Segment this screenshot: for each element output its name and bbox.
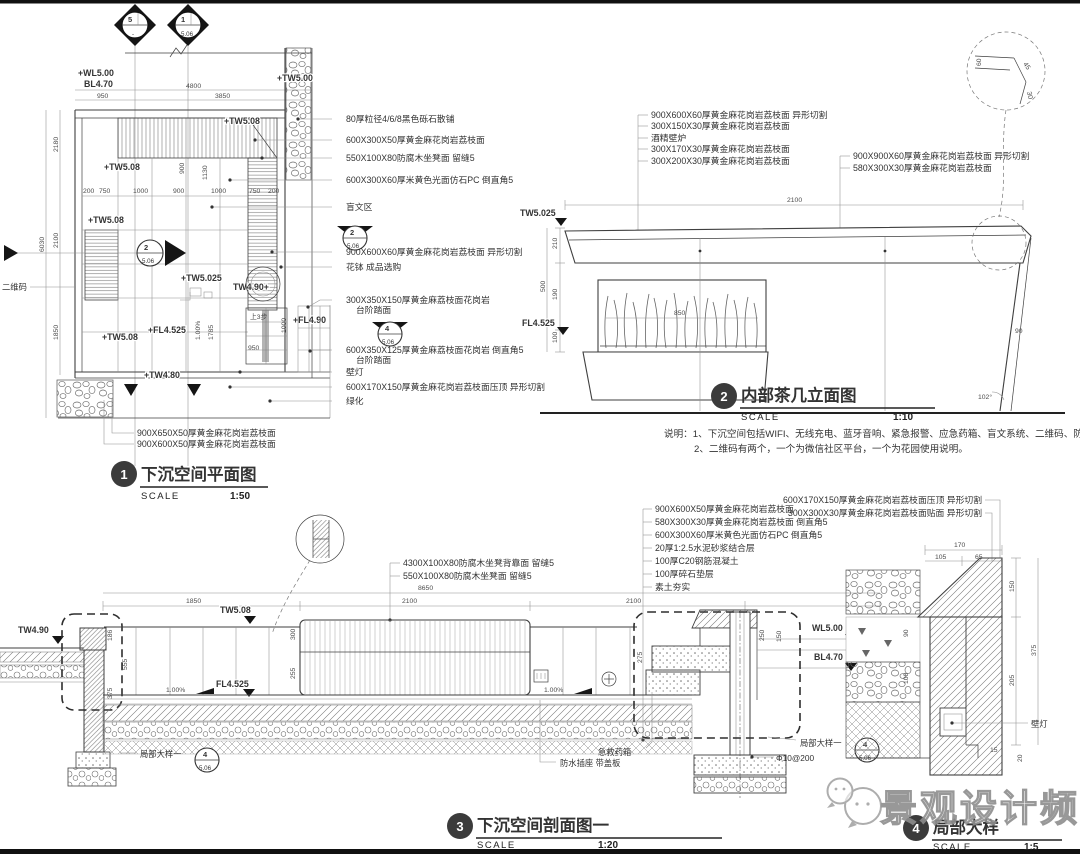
- title-text: 下沉空间平面图: [141, 464, 257, 484]
- corner-detail: 60 45 30: [975, 56, 1034, 104]
- dim: 375: [107, 687, 114, 699]
- scale-value: 1:50: [230, 491, 250, 502]
- floor-layers: [103, 695, 692, 754]
- dim: 750: [99, 188, 111, 195]
- wall-detail-bubble: [272, 515, 344, 634]
- bench-slats: [305, 620, 525, 695]
- dim: 2100: [402, 598, 417, 605]
- section-marker-5: 5 -: [114, 4, 156, 46]
- level-label: +FL4.525: [148, 325, 186, 335]
- title-number: 1: [120, 467, 127, 482]
- detail-call-label: 局部大样一: [800, 738, 842, 748]
- scale-word: SCALE: [933, 842, 972, 853]
- slope-label: 1.00%: [544, 687, 563, 694]
- dim: 850: [674, 310, 686, 317]
- dim: 900: [179, 162, 186, 174]
- title-number: 3: [456, 819, 463, 834]
- watermark: 景观设计频道: [827, 779, 1080, 831]
- dim: 1000: [133, 188, 148, 195]
- title-plan: 1 下沉空间平面图 SCALE 1:50: [111, 461, 268, 502]
- scale-value: 1:10: [893, 412, 913, 423]
- dim: 1785: [208, 325, 215, 340]
- lamp-label: 壁灯: [1031, 719, 1048, 729]
- left-wall-cap: [80, 628, 106, 650]
- gravel-edge-band: [286, 48, 311, 180]
- dim: 60: [976, 58, 983, 66]
- level-label: +TW5.00: [277, 73, 313, 83]
- annotation: 酒精壁炉: [651, 132, 686, 143]
- dim: 750: [249, 188, 261, 195]
- annotation: 绿化: [346, 395, 364, 406]
- wechat-icon: [827, 779, 881, 829]
- scale-word: SCALE: [477, 840, 516, 851]
- annotation: 4300X100X80防腐木坐凳背靠面 留缝5: [403, 557, 554, 568]
- annotation: 900X600X50厚黄金麻花岗岩荔枝面: [137, 438, 276, 449]
- plan-dim-row: 200 750 1000 900 1000 750 200: [83, 188, 280, 195]
- rebar-label: Φ10@200: [776, 753, 814, 763]
- annotation: 花钵 成品选购: [346, 261, 401, 272]
- dim: 190: [552, 288, 559, 300]
- dim: 200: [268, 188, 280, 195]
- dim: 186: [107, 629, 114, 641]
- title-text: 内部茶几立面图: [741, 385, 857, 405]
- dim: 255: [290, 667, 297, 679]
- marker-num: 1: [181, 15, 185, 24]
- dim: 6030: [39, 237, 46, 252]
- slope-label: 1.00%: [195, 321, 202, 340]
- dim: 45: [1021, 61, 1031, 71]
- dim: 8650: [418, 585, 433, 592]
- dim: 100: [552, 331, 559, 343]
- dim: 1850: [53, 325, 60, 340]
- socket-label: 防水插座 带盖板: [560, 758, 621, 768]
- dim: 500: [540, 280, 547, 292]
- notes-line-1: 说明：1、下沉空间包括WIFI、无线充电、蓝牙音响、紧急报警、应急药箱、盲文系统…: [664, 428, 1080, 440]
- title-number: 2: [720, 389, 727, 404]
- dim: 150: [1009, 580, 1016, 592]
- detail-drawing: 600X170X150厚黄金麻花岗岩荔枝面压顶 异形切割 300X300X30厚…: [783, 494, 1048, 775]
- dim: 150: [776, 630, 783, 642]
- annotation: 80厚粒径4/6/8黑色砾石散铺: [346, 113, 455, 124]
- dim: 100: [903, 672, 910, 684]
- level-label: +TW5.08: [88, 215, 124, 225]
- level-label: +WL5.00: [78, 68, 114, 78]
- level-label: TW5.025: [520, 208, 556, 218]
- annotation: 台阶踏面: [356, 304, 391, 315]
- dim: 2100: [626, 598, 641, 605]
- compacted-soil-band: [846, 702, 920, 758]
- dim: 2180: [53, 137, 60, 152]
- plan-drawing: 5 - 1 5.06 4800 950 3850 6030 2180 2100 …: [2, 4, 330, 466]
- dim: 20: [1017, 754, 1024, 762]
- dim: 200: [83, 188, 95, 195]
- notes-line-2: 2、二维码有两个，一个为微信社区平台，一个为花园使用说明。: [694, 443, 968, 455]
- level-label: +TW5.08: [104, 162, 140, 172]
- marker-sheet: -: [132, 31, 134, 38]
- top-edge-bar: [0, 0, 1080, 4]
- dim: 3850: [215, 93, 230, 100]
- annotation: 盲文区: [346, 201, 373, 212]
- coping-block: [918, 558, 1002, 617]
- annotation: 台阶踏面: [356, 354, 391, 365]
- scale-word: SCALE: [141, 491, 180, 502]
- section-drawing: 8650 1850 2100 2100 4300X100X80防腐木坐凳背靠面 …: [0, 503, 880, 798]
- dim: 950: [248, 345, 260, 352]
- annotation: 900X900X60厚黄金麻花岗岩荔枝面 异形切割: [853, 150, 1030, 161]
- dim: 300: [290, 628, 297, 640]
- drawing-canvas: 5 - 1 5.06 4800 950 3850 6030 2180 2100 …: [0, 0, 1080, 854]
- table-top-slab: [565, 226, 1031, 263]
- level-label: TW4.90: [18, 625, 49, 635]
- dim: 1130: [202, 165, 209, 180]
- level-label: FL4.525: [216, 679, 249, 689]
- dim: 170: [954, 542, 966, 549]
- annotation: 300X170X30厚黄金麻花岗岩荔枝面: [651, 143, 790, 154]
- annotation: 100厚C20钢筋混凝土: [655, 555, 739, 566]
- dim: 275: [637, 651, 644, 663]
- level-label: WL5.00: [812, 623, 843, 633]
- marker-sheet: 5.06: [199, 765, 212, 772]
- dim: 90: [903, 629, 910, 637]
- slope-label: 1.00%: [166, 687, 185, 694]
- dim: 1850: [186, 598, 201, 605]
- gravel-corner-patch: [57, 380, 113, 417]
- bottom-edge-bar: [0, 849, 1080, 854]
- dim: 105: [935, 554, 947, 561]
- annotation: 600X170X150厚黄金麻花岗岩荔枝面压顶 异形切割: [346, 381, 545, 392]
- dim: 900: [173, 188, 185, 195]
- annotation: 300X200X30厚黄金麻花岗岩荔枝面: [651, 155, 790, 166]
- aid-label: 急救药箱: [598, 747, 631, 757]
- level-label: +TW4.80: [144, 370, 180, 380]
- elevation-drawing: 900X600X60厚黄金麻花岗岩荔枝面 异形切割 300X150X30厚黄金麻…: [520, 32, 1065, 413]
- annotation: 900X650X50厚黄金麻花岗岩荔枝面: [137, 427, 276, 438]
- annotation: 900X600X50厚黄金麻花岗岩荔枝面: [655, 503, 794, 514]
- marker-num: 2: [144, 243, 148, 252]
- first-aid-icon: [602, 672, 616, 686]
- dim: 210: [552, 237, 559, 249]
- dim: 2100: [53, 233, 60, 248]
- annotation: 300X150X30厚黄金麻花岗岩荔枝面: [651, 120, 790, 131]
- dim: 555: [122, 658, 129, 670]
- qr-label: 二维码: [2, 282, 27, 292]
- dim: 375: [1031, 644, 1038, 656]
- level-label: BL4.70: [84, 79, 113, 89]
- level-label: BL4.70: [814, 652, 843, 662]
- title-text: 下沉空间剖面图一: [477, 815, 610, 835]
- dim: 4800: [186, 83, 201, 90]
- annotation: 550X100X80防腐木坐凳面 留缝5: [403, 570, 532, 581]
- annotation: 600X300X50厚黄金麻花岗岩荔枝面: [346, 134, 485, 145]
- watermark-text: 景观设计频道: [880, 788, 1080, 830]
- annotation: 素土夯实: [655, 581, 690, 592]
- marker-sheet: 5.06: [347, 243, 360, 250]
- annotation: 300X300X30厚黄金麻花岗岩荔枝面贴面 异形切割: [788, 507, 982, 518]
- socket-icon: [534, 670, 548, 682]
- marker-sheet: 5.06: [142, 258, 155, 265]
- scale-value: 1:5: [1024, 842, 1039, 853]
- scale-value: 1:20: [598, 840, 618, 851]
- section-marker-1: 1 5.06: [167, 4, 209, 46]
- annotation: 550X100X80防腐木坐凳面 留缝5: [346, 152, 475, 163]
- dim: 102°: [978, 393, 992, 401]
- annotation: 900X600X60厚黄金麻花岗岩荔枝面 异形切割: [346, 246, 523, 257]
- dim: 205: [1009, 674, 1016, 686]
- scale-word: SCALE: [741, 412, 780, 423]
- level-label: +TW5.025: [181, 273, 222, 283]
- annotation: 600X350X125厚黄金麻荔枝面花岗岩 倒直角5: [346, 344, 524, 355]
- annotation: 20厚1:2.5水泥砂浆结合层: [655, 542, 755, 553]
- steps-label: 上3步: [250, 312, 268, 321]
- marker-num: 2: [350, 228, 354, 237]
- level-label: FL4.525: [522, 318, 555, 328]
- annotation: 600X170X150厚黄金麻花岗岩荔枝面压顶 异形切割: [783, 494, 982, 505]
- dim: 1000: [211, 188, 226, 195]
- level-label: TW5.08: [220, 605, 251, 615]
- dim: 250: [759, 629, 766, 641]
- annotation: 580X300X30厚黄金麻花岗岩荔枝面: [853, 162, 992, 173]
- annotation: 100厚碎石垫层: [655, 568, 714, 579]
- left-wall: [84, 650, 104, 752]
- dim: 15: [990, 747, 998, 754]
- annotation: 300X350X150厚黄金麻荔枝面花岗岩: [346, 294, 490, 305]
- detail-call-label: 局部大样一: [140, 749, 182, 759]
- marker-sheet: 5.06: [181, 31, 194, 38]
- title-elevation: 2 内部茶几立面图 SCALE 1:10: [711, 383, 935, 423]
- notes: 说明：1、下沉空间包括WIFI、无线充电、蓝牙音响、紧急报警、应急药箱、盲文系统…: [664, 428, 1080, 455]
- dim: 30: [1025, 91, 1033, 100]
- dim: 90: [1015, 328, 1023, 335]
- stair-band-left: [85, 230, 118, 300]
- dim: 950: [97, 93, 109, 100]
- annotation: 600X300X60厚米黄色光面仿石PC 倒直角5: [655, 529, 822, 540]
- level-label: +TW5.08: [102, 332, 138, 342]
- fill-band: [846, 617, 920, 662]
- level-label: +TW5.08: [224, 116, 260, 126]
- plan-annotations: 80厚粒径4/6/8黑色砾石散铺 600X300X50厚黄金麻花岗岩荔枝面 55…: [104, 113, 545, 449]
- annotation: 壁灯: [346, 366, 364, 377]
- annotation: 600X300X60厚米黄色光面仿石PC 倒直角5: [346, 174, 513, 185]
- marker-num: 5: [128, 15, 132, 24]
- marker-sheet: 5.06: [382, 339, 395, 346]
- cad-sheet: 5 - 1 5.06 4800 950 3850 6030 2180 2100 …: [0, 0, 1080, 854]
- grass: [605, 293, 757, 348]
- gravel-band-top: [846, 570, 920, 614]
- dim: 2100: [787, 197, 802, 204]
- title-section: 3 下沉空间剖面图一 SCALE 1:20: [447, 813, 722, 851]
- detail-marker-4: 4 5.06: [372, 322, 408, 346]
- annotation: 900X600X60厚黄金麻花岗岩荔枝面 异形切割: [651, 109, 828, 120]
